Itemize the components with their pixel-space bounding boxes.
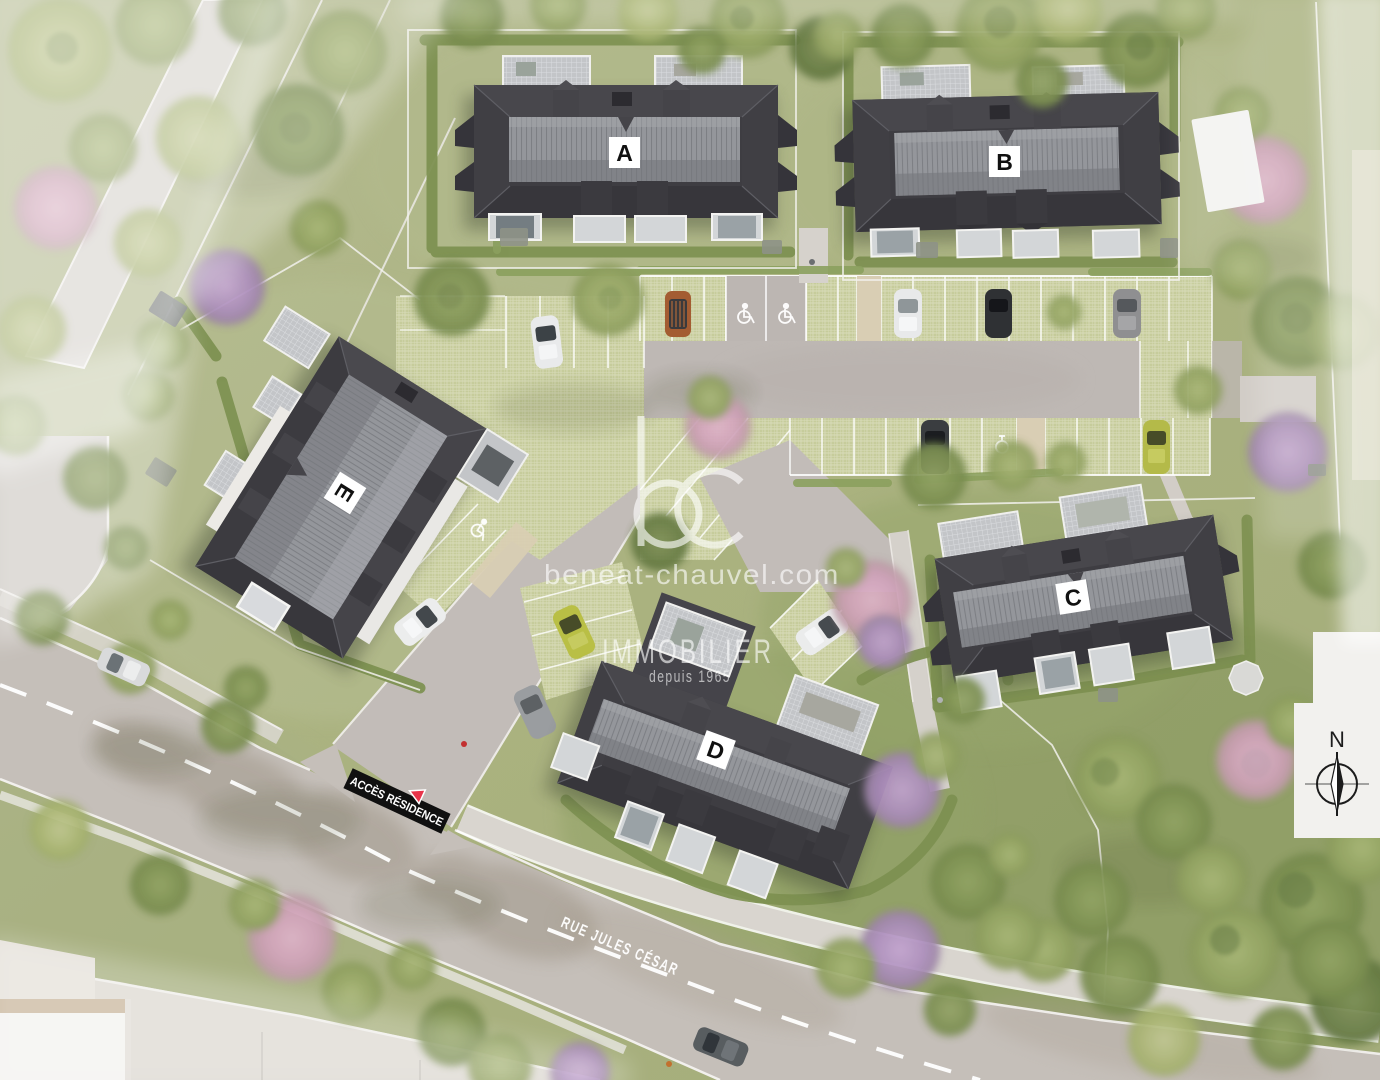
svg-text:A: A — [616, 140, 633, 166]
svg-text:N: N — [1329, 727, 1345, 752]
svg-text:depuis 1965: depuis 1965 — [649, 667, 731, 686]
svg-text:IMMOBILIER: IMMOBILIER — [602, 633, 774, 671]
svg-text:B: B — [996, 149, 1013, 175]
svg-text:beneat-chauvel.com: beneat-chauvel.com — [544, 559, 840, 590]
